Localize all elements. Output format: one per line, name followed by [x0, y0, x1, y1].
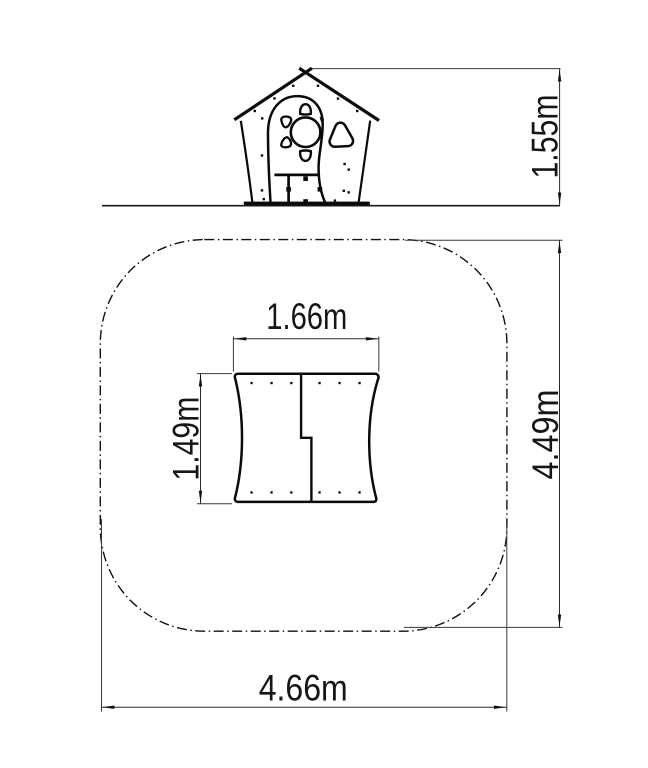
svg-text:4.49m: 4.49m: [525, 390, 566, 480]
svg-text:4.66m: 4.66m: [259, 667, 348, 708]
svg-text:1.49m: 1.49m: [166, 397, 207, 481]
svg-text:1.66m: 1.66m: [266, 296, 347, 337]
svg-text:1.55m: 1.55m: [525, 95, 566, 179]
